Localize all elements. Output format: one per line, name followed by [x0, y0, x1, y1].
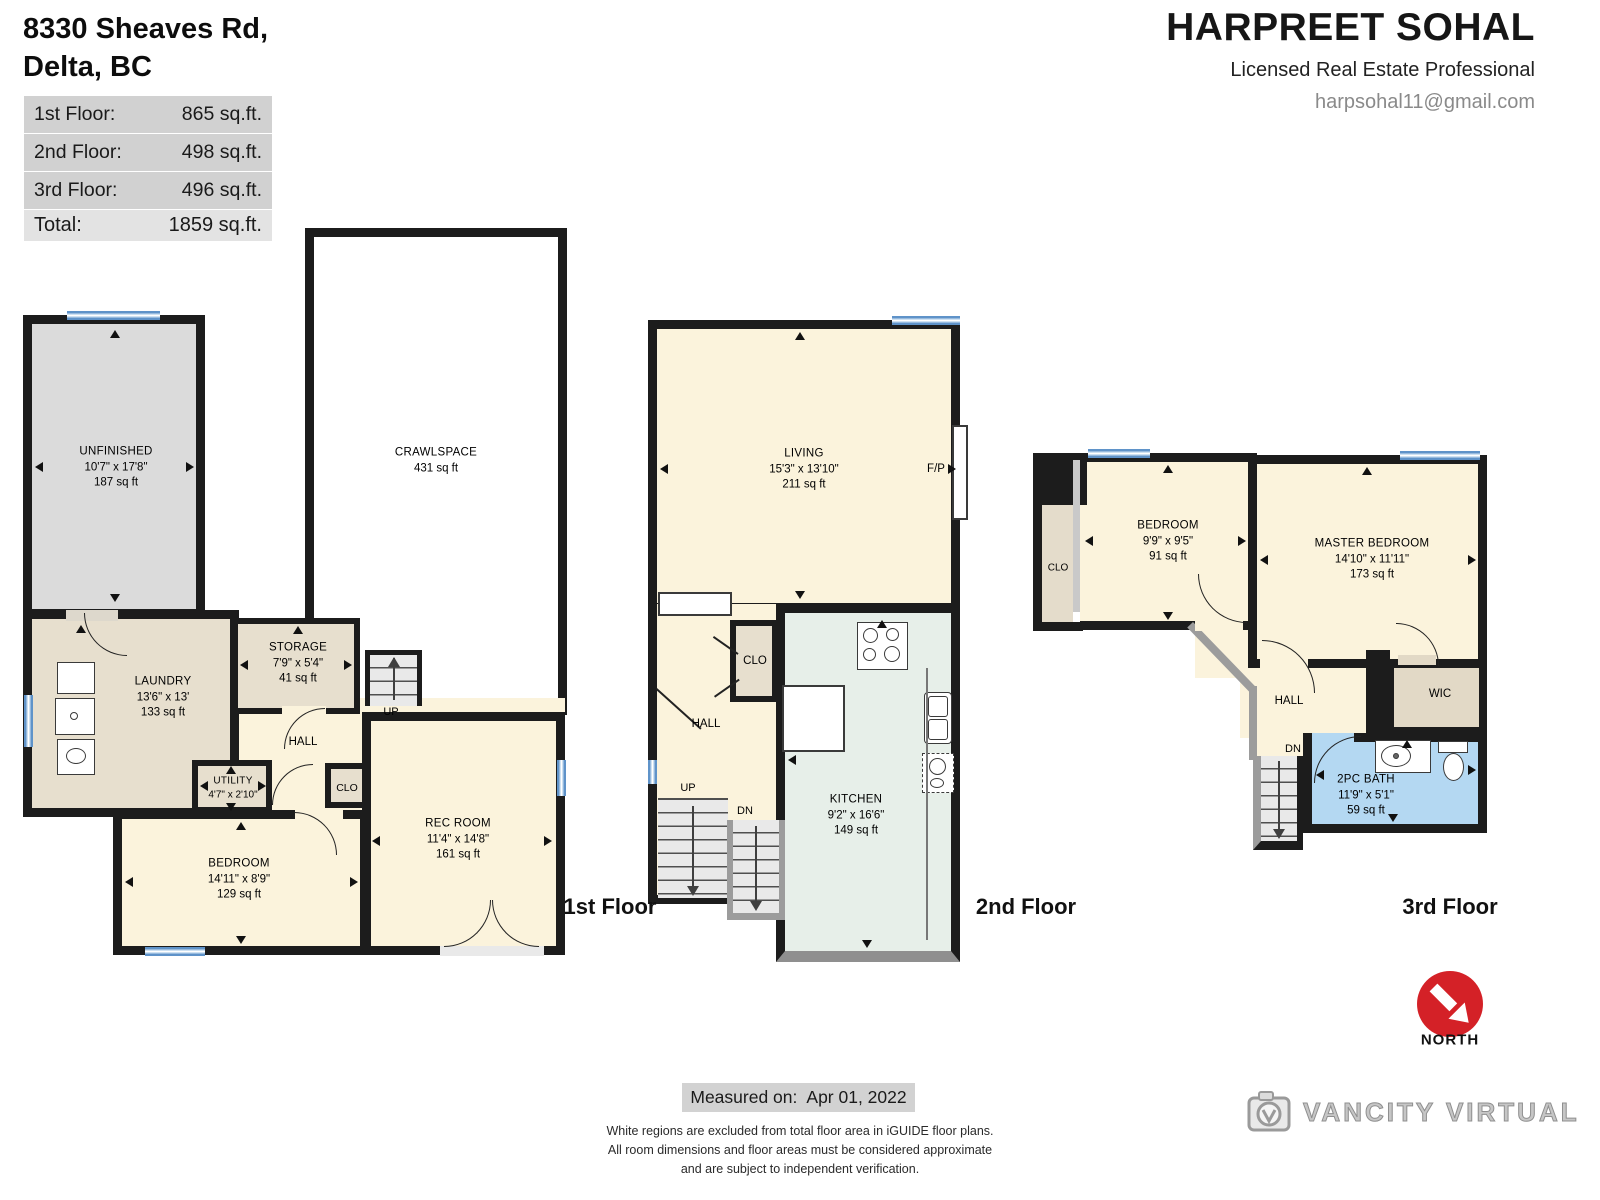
row-value: 498 sq.ft. [182, 141, 262, 164]
wic-label: WIC [1429, 688, 1451, 700]
window [67, 311, 160, 320]
dimension-arrow-icon [293, 626, 303, 634]
room-dims: 7'9" x 5'4" [269, 656, 327, 672]
dimension-arrow-icon [226, 803, 236, 811]
table-total-row: Total: 1859 sq.ft. [24, 210, 272, 241]
floor-label-1: 1st Floor [564, 894, 657, 920]
dimension-arrow-icon [1085, 536, 1093, 546]
room-name: STORAGE [269, 641, 327, 657]
agent-title: Licensed Real Estate Professional [1166, 59, 1535, 82]
hall-label-2f: HALL [692, 718, 721, 730]
wall-segment [1033, 622, 1083, 631]
fridge-icon [782, 685, 845, 752]
measured-value: Apr 01, 2022 [806, 1087, 906, 1108]
disclaimer-line: White regions are excluded from total fl… [607, 1124, 994, 1138]
property-address: 8330 Sheaves Rd, Delta, BC [23, 10, 268, 87]
dimension-arrow-icon [877, 620, 887, 628]
room-dims: 14'10" x 11'11" [1315, 552, 1430, 568]
room-area: 211 sq ft [769, 478, 838, 494]
row-value: 496 sq.ft. [182, 179, 262, 202]
agent-block: HARPREET SOHAL Licensed Real Estate Prof… [1166, 6, 1535, 114]
dimension-arrow-icon [948, 464, 956, 474]
vancity-virtual-logo: VANCITY VIRTUAL [1245, 1090, 1580, 1134]
dimension-arrow-icon [110, 330, 120, 338]
room-label-laundry: LAUNDRY 13'6" x 13' 133 sq ft [135, 675, 192, 722]
staircase-down-2f [727, 820, 785, 920]
room-area: 59 sq ft [1337, 804, 1395, 820]
hall-label-3f: HALL [1275, 695, 1304, 707]
stair-arrow-down-icon [1273, 829, 1285, 839]
room-dims: 11'9" x 5'1" [1337, 788, 1395, 804]
dimension-arrow-icon [76, 625, 86, 633]
sink-basin [928, 696, 948, 717]
stair-direction-line [692, 806, 694, 886]
room-name: 2PC BATH [1337, 773, 1395, 789]
north-arrow-icon [1417, 971, 1483, 1037]
floorplan-sheet: 8330 Sheaves Rd, Delta, BC 1st Floor: 86… [0, 0, 1600, 1200]
dimension-arrow-icon [236, 822, 246, 830]
stair-arrow-down-icon [750, 901, 762, 911]
dimension-arrow-icon [1260, 555, 1268, 565]
room-name: BEDROOM [208, 857, 270, 873]
dimension-arrow-icon [544, 836, 552, 846]
window [1400, 451, 1480, 460]
room-area: 91 sq ft [1137, 550, 1199, 566]
room-label-bedroom-3f: BEDROOM 9'9" x 9'5" 91 sq ft [1137, 519, 1199, 566]
room-name: UNFINISHED [79, 445, 152, 461]
room-name: LAUNDRY [135, 675, 192, 691]
dishwasher-dial-icon [929, 758, 946, 775]
dimension-arrow-icon [795, 591, 805, 599]
north-label: NORTH [1421, 1032, 1479, 1049]
room-name: BEDROOM [1137, 519, 1199, 535]
logo-text: VANCITY VIRTUAL [1303, 1097, 1580, 1128]
room-label-unfinished: UNFINISHED 10'7" x 17'8" 187 sq ft [79, 445, 152, 492]
room-area: 173 sq ft [1315, 568, 1430, 584]
window [648, 760, 657, 784]
floor-label-3: 3rd Floor [1402, 894, 1497, 920]
agent-name: HARPREET SOHAL [1166, 6, 1535, 50]
room-label-bath: 2PC BATH 11'9" x 5'1" 59 sq ft [1337, 773, 1395, 820]
total-label: Total: [34, 214, 82, 237]
washer-icon [57, 662, 95, 694]
dimension-arrow-icon [788, 755, 796, 765]
measured-label: Measured on: [690, 1087, 797, 1108]
row-label: 1st Floor: [34, 103, 115, 126]
window [1088, 449, 1150, 458]
dimension-arrow-icon [258, 781, 266, 791]
room-dims: 11'4" x 14'8" [425, 832, 491, 848]
hall-label-1f: HALL [289, 736, 318, 748]
room-name: CRAWLSPACE [395, 445, 477, 461]
north-arrow-svg [1417, 971, 1483, 1037]
floor-label-2: 2nd Floor [976, 894, 1076, 920]
room-label-utility: UTILITY 4'7" x 2'10" [208, 775, 257, 802]
room-dims: 9'2" x 16'6" [828, 808, 885, 824]
gray-wall [1249, 686, 1257, 760]
room-name: REC ROOM [425, 817, 491, 833]
counter-line [926, 668, 928, 940]
window [892, 316, 960, 325]
row-label: 2nd Floor: [34, 141, 122, 164]
dimension-arrow-icon [344, 660, 352, 670]
closet-label-1f: CLO [336, 782, 358, 794]
fireplace-label: F/P [927, 463, 945, 475]
dimension-arrow-icon [1316, 770, 1324, 780]
dimension-arrow-icon [1362, 467, 1372, 475]
room-label-storage: STORAGE 7'9" x 5'4" 41 sq ft [269, 641, 327, 688]
room-name: MASTER BEDROOM [1315, 537, 1430, 553]
dimension-arrow-icon [1163, 612, 1173, 620]
room-name: UTILITY [208, 775, 257, 789]
room-dims: 13'6" x 13' [135, 690, 192, 706]
dimension-arrow-icon [236, 936, 246, 944]
hearth-box [658, 592, 732, 616]
closet-label-3f: CLO [1048, 563, 1069, 574]
total-value: 1859 sq.ft. [169, 214, 262, 237]
wall-segment [1366, 650, 1390, 738]
room-label-master: MASTER BEDROOM 14'10" x 11'11" 173 sq ft [1315, 537, 1430, 584]
room-dims: 10'7" x 17'8" [79, 460, 152, 476]
sink-drain-icon [1393, 753, 1399, 759]
up-label-1f: UP [383, 706, 398, 718]
stair-direction-line [755, 826, 757, 902]
dn-label-2f: DN [737, 805, 753, 817]
room-dims: 4'7" x 2'10" [208, 788, 257, 802]
window [145, 947, 205, 956]
stair-arrow-up-icon [388, 657, 400, 667]
door-opening [1195, 621, 1243, 631]
row-label: 3rd Floor: [34, 179, 117, 202]
room-dims: 14'11" x 8'9" [208, 872, 270, 888]
room-name: LIVING [769, 447, 838, 463]
table-row: 1st Floor: 865 sq.ft. [24, 96, 272, 133]
room-area: 129 sq ft [208, 888, 270, 904]
dimension-arrow-icon [350, 877, 358, 887]
room-area: 161 sq ft [425, 848, 491, 864]
burner-icon [863, 628, 878, 643]
stair-arrow-down-icon [687, 886, 699, 896]
room-area: 133 sq ft [135, 706, 192, 722]
room-area: 149 sq ft [828, 824, 885, 840]
row-value: 865 sq.ft. [182, 103, 262, 126]
burner-icon [863, 648, 876, 661]
camera-icon [1245, 1090, 1293, 1134]
dimension-arrow-icon [110, 594, 120, 602]
staircase-up-2f [658, 798, 728, 898]
dimension-arrow-icon [1402, 740, 1412, 748]
window [24, 695, 33, 747]
room-dims: 15'3" x 13'10" [769, 462, 838, 478]
table-row: 2nd Floor: 498 sq.ft. [24, 134, 272, 171]
dimension-arrow-icon [35, 462, 43, 472]
address-line2: Delta, BC [23, 48, 268, 86]
dimension-arrow-icon [1163, 465, 1173, 473]
room-name: KITCHEN [828, 793, 885, 809]
sink-basin [928, 719, 948, 740]
room-label-crawlspace: CRAWLSPACE 431 sq ft [395, 445, 477, 476]
room-label-kitchen: KITCHEN 9'2" x 16'6" 149 sq ft [828, 793, 885, 840]
staircase-down-3f [1253, 756, 1303, 850]
dimension-arrow-icon [660, 464, 668, 474]
agent-email[interactable]: harpsohal11@gmail.com [1166, 91, 1535, 114]
dimension-arrow-icon [240, 660, 248, 670]
dn-label-3f: DN [1285, 743, 1301, 755]
dimension-arrow-icon [1468, 555, 1476, 565]
closet-label-2f: CLO [743, 655, 767, 667]
dimension-arrow-icon [226, 766, 236, 774]
room-area: 431 sq ft [395, 461, 477, 477]
room-area: 41 sq ft [269, 672, 327, 688]
toilet-tank-icon [1438, 741, 1468, 753]
door-opening [440, 946, 544, 956]
dimension-arrow-icon [862, 940, 872, 948]
table-row: 3rd Floor: 496 sq.ft. [24, 172, 272, 209]
disclaimer-line: All room dimensions and floor areas must… [608, 1143, 992, 1157]
room-label-recroom: REC ROOM 11'4" x 14'8" 161 sq ft [425, 817, 491, 864]
burner-icon [884, 646, 900, 662]
sink-drain-icon [70, 712, 78, 720]
room-dims: 9'9" x 9'5" [1137, 534, 1199, 550]
stair-direction-line [1278, 761, 1280, 831]
staircase-up-1f [365, 650, 422, 706]
dimension-arrow-icon [1238, 536, 1246, 546]
toilet-bowl-icon [66, 748, 86, 764]
address-line1: 8330 Sheaves Rd, [23, 10, 268, 48]
toilet-bowl-icon [1443, 753, 1464, 781]
dimension-arrow-icon [1388, 814, 1398, 822]
dimension-arrow-icon [1468, 765, 1476, 775]
sliding-door [1073, 460, 1080, 612]
window [557, 760, 566, 796]
dimension-arrow-icon [372, 836, 380, 846]
room-label-bedroom-1f: BEDROOM 14'11" x 8'9" 129 sq ft [208, 857, 270, 904]
measured-on-badge: Measured on: Apr 01, 2022 [682, 1083, 915, 1112]
wall-segment [1033, 453, 1042, 631]
disclaimer-line: and are subject to independent verificat… [681, 1162, 919, 1176]
dimension-arrow-icon [795, 332, 805, 340]
dimension-arrow-icon [186, 462, 194, 472]
room-area: 187 sq ft [79, 476, 152, 492]
dimension-arrow-icon [125, 877, 133, 887]
area-summary-table: 1st Floor: 865 sq.ft. 2nd Floor: 498 sq.… [24, 96, 272, 241]
room-label-living: LIVING 15'3" x 13'10" 211 sq ft [769, 447, 838, 494]
dishwasher-oval-icon [930, 778, 944, 788]
up-label-2f: UP [680, 782, 695, 794]
dimension-arrow-icon [200, 781, 208, 791]
burner-icon [886, 628, 899, 641]
